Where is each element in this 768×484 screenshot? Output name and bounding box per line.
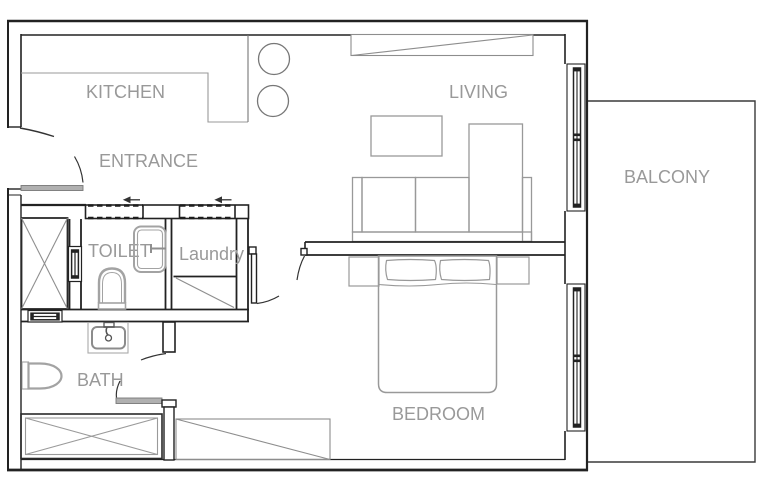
svg-text:ENTRANCE: ENTRANCE bbox=[99, 151, 198, 171]
svg-text:KITCHEN: KITCHEN bbox=[86, 82, 165, 102]
svg-text:BEDROOM: BEDROOM bbox=[392, 404, 485, 424]
svg-text:BATH: BATH bbox=[77, 370, 124, 390]
svg-text:TOILET: TOILET bbox=[88, 241, 151, 261]
svg-text:LIVING: LIVING bbox=[449, 82, 508, 102]
svg-text:BALCONY: BALCONY bbox=[624, 167, 710, 187]
svg-text:Laundry: Laundry bbox=[179, 244, 244, 264]
